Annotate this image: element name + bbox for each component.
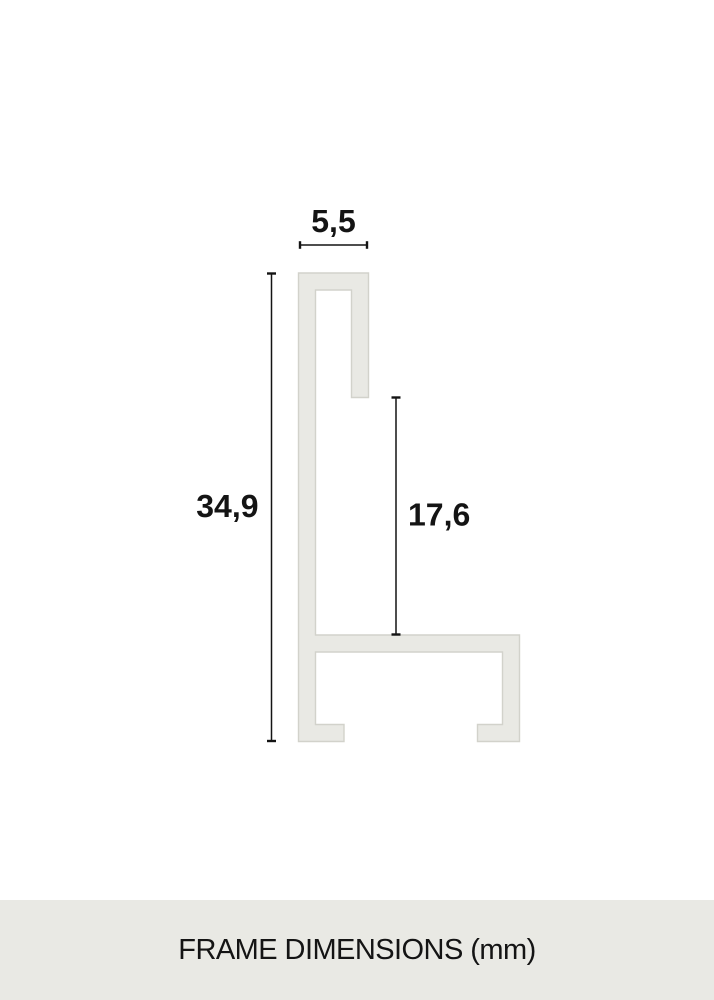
svg-text:5,5: 5,5 [311,203,355,239]
svg-text:17,6: 17,6 [408,497,470,533]
svg-text:34,9: 34,9 [196,488,258,524]
